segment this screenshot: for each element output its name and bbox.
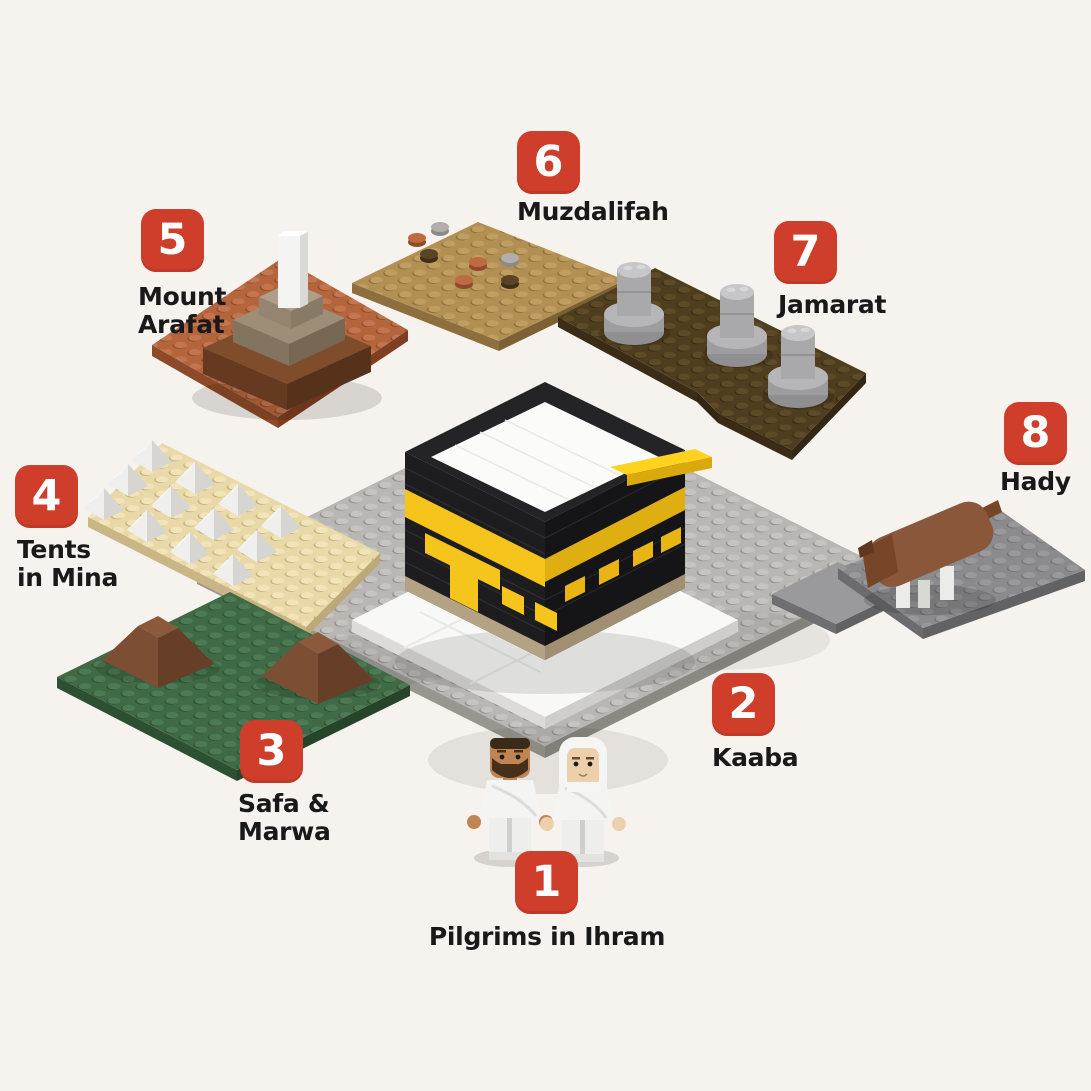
step-label-1: Pilgrims in Ihram xyxy=(429,923,665,951)
step-label-7: Jamarat xyxy=(778,291,886,319)
step-label-8: Hady xyxy=(1000,468,1071,496)
step-badge-6: 6 xyxy=(517,131,580,194)
step-badge-7: 7 xyxy=(774,221,837,284)
step-badge-3: 3 xyxy=(240,720,303,783)
step-label-6: Muzdalifah xyxy=(517,198,669,226)
step-label-2: Kaaba xyxy=(712,744,798,772)
hajj-lego-diagram: 1 Pilgrims in Ihram 2 Kaaba 3 Safa &Marw… xyxy=(0,0,1091,1091)
step-number-8: 8 xyxy=(1021,412,1051,455)
step-label-5: MountArafat xyxy=(138,283,226,339)
step-number-7: 7 xyxy=(791,231,821,274)
step-badge-2: 2 xyxy=(712,673,775,736)
step-number-4: 4 xyxy=(32,475,62,518)
step-number-5: 5 xyxy=(158,219,188,262)
step-badge-4: 4 xyxy=(15,465,78,528)
step-number-6: 6 xyxy=(534,141,564,184)
step-number-3: 3 xyxy=(257,730,287,773)
step-number-1: 1 xyxy=(532,861,562,904)
shadow xyxy=(428,726,668,794)
step-number-2: 2 xyxy=(729,683,759,726)
step-label-3: Safa &Marwa xyxy=(238,790,331,846)
step-label-4: Tentsin Mina xyxy=(17,536,118,592)
arafat-pillar xyxy=(278,231,308,308)
step-badge-5: 5 xyxy=(141,209,204,272)
step-badge-8: 8 xyxy=(1004,402,1067,465)
step-badge-1: 1 xyxy=(515,851,578,914)
